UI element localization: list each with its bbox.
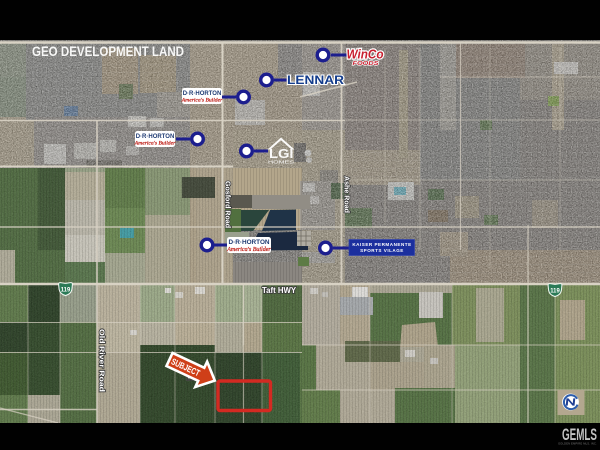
svg-text:D·R·HORTON: D·R·HORTON [228, 239, 269, 246]
svg-text:FOODS: FOODS [353, 61, 379, 67]
svg-text:119: 119 [550, 289, 560, 295]
svg-text:D·R·HORTON: D·R·HORTON [183, 91, 222, 97]
svg-text:Old River Road: Old River Road [98, 329, 107, 393]
svg-text:America's Builder: America's Builder [134, 141, 176, 147]
svg-text:SPORTS VILAGE: SPORTS VILAGE [360, 248, 404, 253]
svg-text:America's Builder: America's Builder [181, 98, 223, 104]
svg-text:KAISER PERMANENTE: KAISER PERMANENTE [352, 242, 411, 247]
svg-text:GEMLS: GEMLS [562, 426, 597, 444]
svg-text:GOLDEN EMPIRE MLS, INC.: GOLDEN EMPIRE MLS, INC. [558, 441, 597, 445]
svg-text:Taft HWY: Taft HWY [262, 286, 297, 295]
svg-text:Ashe Road: Ashe Road [343, 176, 350, 213]
svg-text:Gosford Road: Gosford Road [224, 181, 231, 228]
svg-text:HOMES: HOMES [268, 160, 294, 165]
svg-text:D·R·HORTON: D·R·HORTON [136, 134, 175, 140]
svg-text:GEO DEVELOPMENT LAND: GEO DEVELOPMENT LAND [32, 43, 184, 59]
svg-text:America's Builder: America's Builder [226, 247, 271, 253]
svg-text:119: 119 [61, 288, 71, 294]
svg-text:WinCo: WinCo [347, 48, 384, 62]
svg-text:LENNAR: LENNAR [287, 75, 345, 87]
